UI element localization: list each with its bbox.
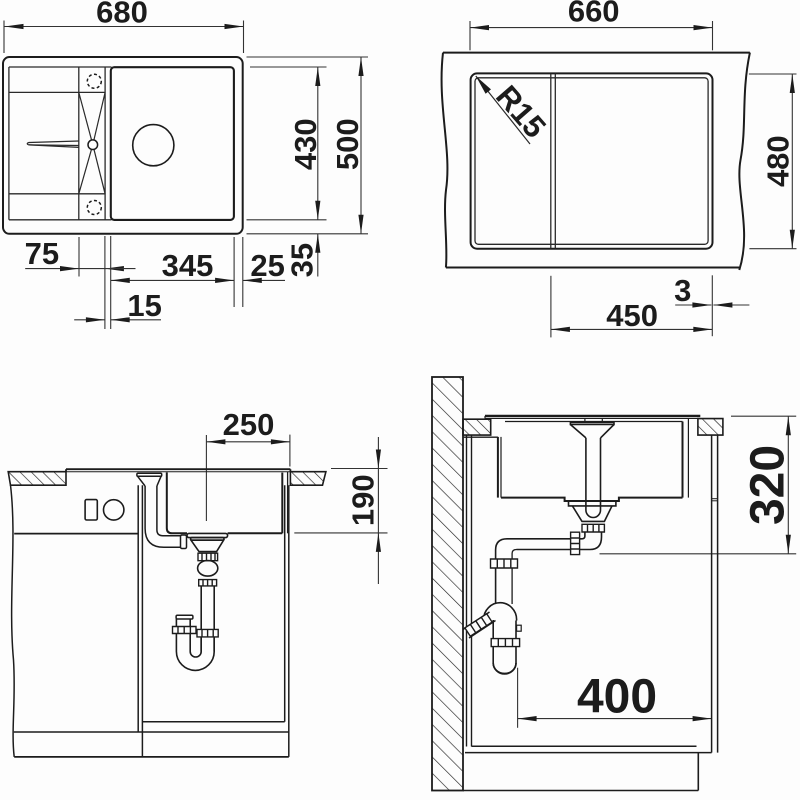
svg-text:345: 345 bbox=[162, 248, 214, 283]
svg-text:680: 680 bbox=[96, 0, 148, 29]
svg-text:480: 480 bbox=[761, 135, 796, 187]
svg-text:250: 250 bbox=[223, 407, 275, 442]
svg-text:320: 320 bbox=[742, 445, 795, 525]
svg-text:15: 15 bbox=[127, 288, 161, 323]
svg-text:400: 400 bbox=[577, 671, 657, 724]
svg-text:3: 3 bbox=[674, 273, 691, 308]
svg-text:35: 35 bbox=[285, 243, 320, 277]
svg-text:25: 25 bbox=[250, 248, 284, 283]
svg-text:450: 450 bbox=[606, 298, 658, 333]
svg-text:190: 190 bbox=[346, 474, 381, 526]
svg-text:660: 660 bbox=[568, 0, 620, 29]
svg-text:75: 75 bbox=[25, 236, 59, 271]
svg-text:430: 430 bbox=[288, 118, 323, 170]
svg-text:500: 500 bbox=[330, 118, 365, 170]
